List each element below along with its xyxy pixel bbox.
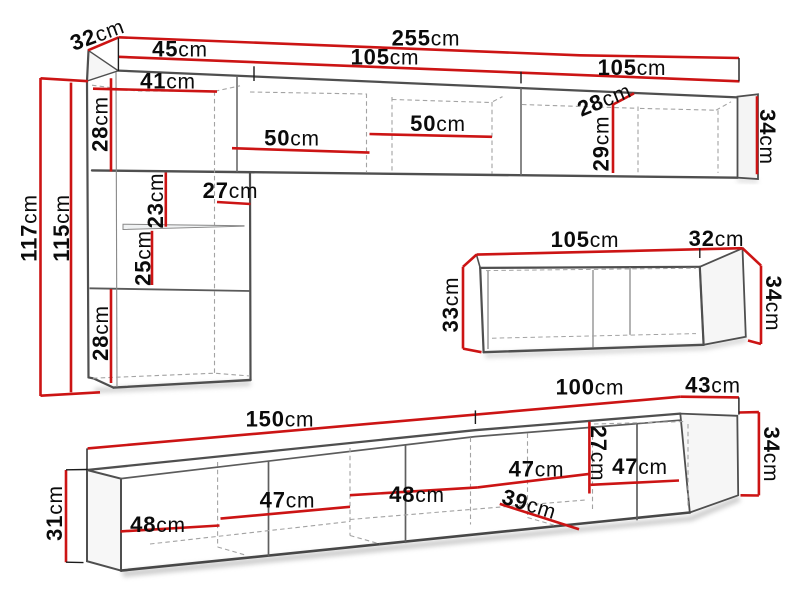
svg-text:47cm: 47cm [260,488,316,513]
svg-text:28cm: 28cm [88,96,113,152]
svg-text:47cm: 47cm [612,454,668,479]
svg-text:117cm: 117cm [17,194,42,262]
svg-text:45cm: 45cm [152,37,208,62]
svg-text:27cm: 27cm [203,178,259,203]
svg-text:43cm: 43cm [685,373,741,398]
svg-text:47cm: 47cm [509,457,565,482]
svg-text:28cm: 28cm [88,305,113,361]
svg-text:27cm: 27cm [586,426,611,482]
svg-text:25cm: 25cm [131,230,156,286]
svg-text:105cm: 105cm [598,55,667,80]
svg-text:34cm: 34cm [759,427,784,483]
svg-text:32cm: 32cm [689,226,745,251]
svg-text:48cm: 48cm [389,482,445,507]
svg-text:31cm: 31cm [42,485,67,541]
svg-text:100cm: 100cm [556,375,625,400]
svg-text:34cm: 34cm [761,276,786,332]
svg-text:34cm: 34cm [755,109,780,165]
svg-text:41cm: 41cm [140,69,196,94]
svg-text:29cm: 29cm [589,116,614,172]
svg-text:50cm: 50cm [410,111,466,136]
svg-text:150cm: 150cm [246,407,315,432]
svg-text:105cm: 105cm [551,227,620,252]
svg-text:115cm: 115cm [49,194,74,262]
svg-text:23cm: 23cm [143,173,168,229]
svg-text:48cm: 48cm [130,512,186,537]
svg-text:50cm: 50cm [264,126,320,151]
svg-text:33cm: 33cm [438,277,463,333]
svg-text:105cm: 105cm [351,45,420,70]
